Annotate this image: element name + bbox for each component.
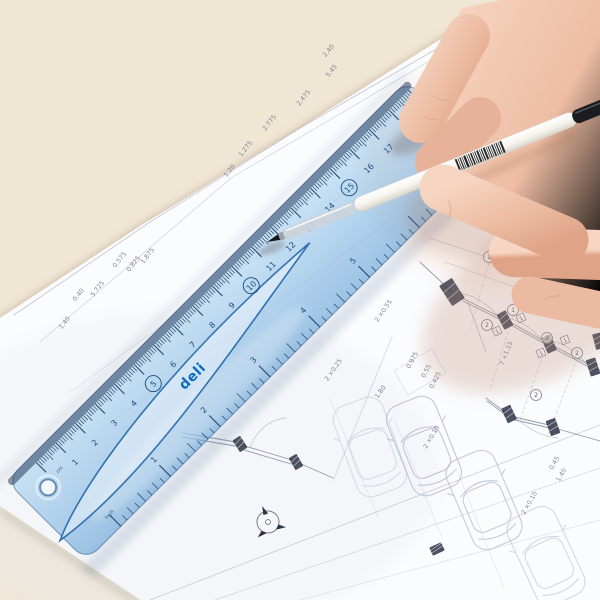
pinky-finger bbox=[530, 295, 600, 310]
axis-bubble-number: 2 bbox=[534, 392, 538, 399]
photo-scene: { "scene": { "desk_color": "#f2e9d7", "p… bbox=[0, 0, 600, 600]
photo-canvas: 1.400.405.7250.5750.8251.8751.201.2752.7… bbox=[0, 0, 600, 600]
